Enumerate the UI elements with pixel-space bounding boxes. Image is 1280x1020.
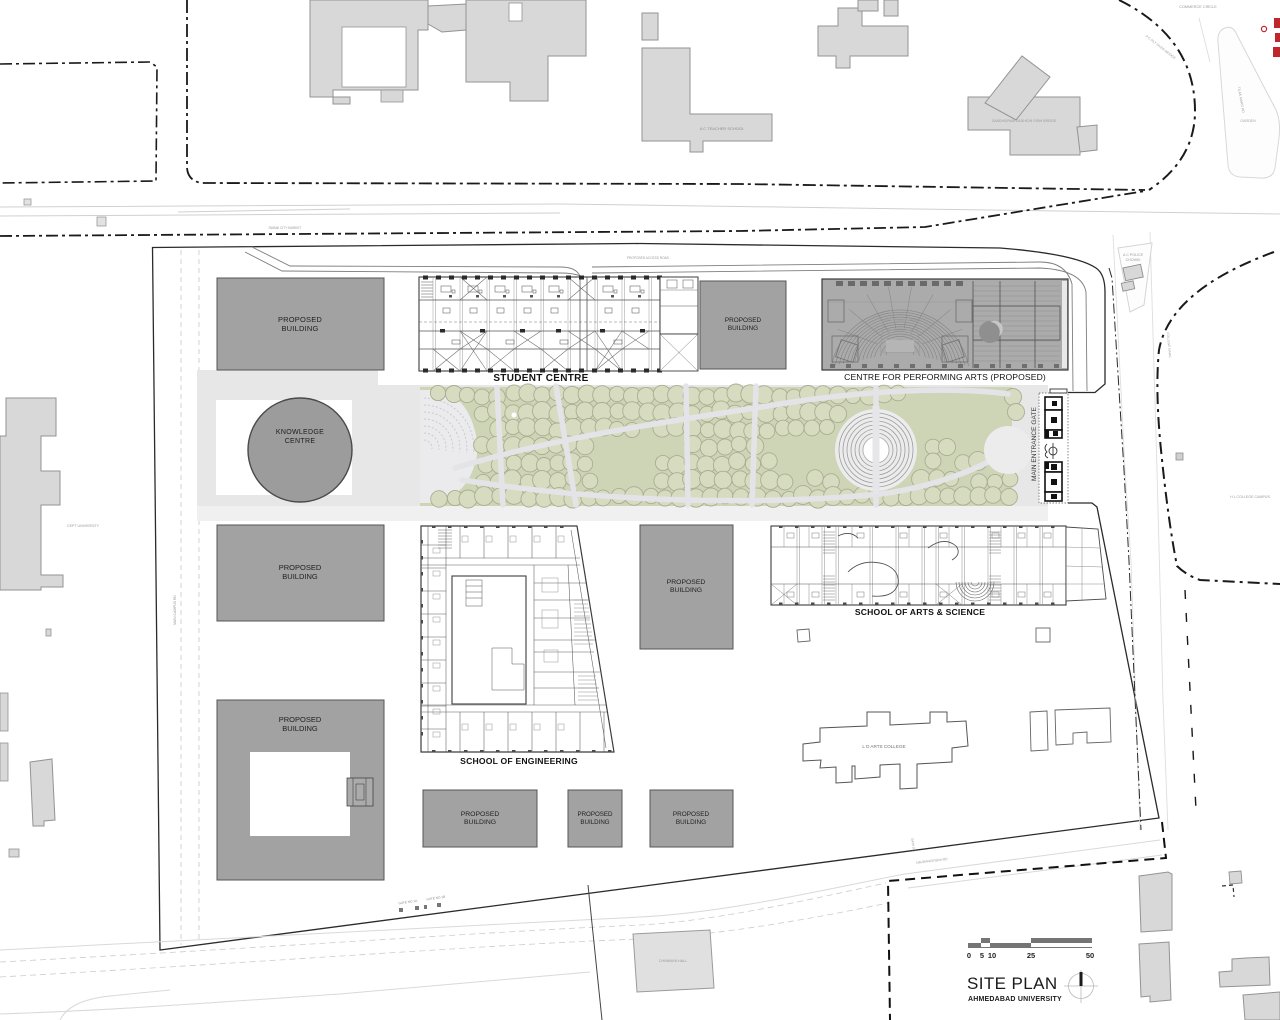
svg-text:25: 25 — [1027, 951, 1035, 960]
svg-text:H L COLLEGE CAMPUS: H L COLLEGE CAMPUS — [1230, 495, 1270, 499]
svg-text:BUILDING: BUILDING — [728, 325, 758, 332]
svg-text:GANDHIGRAM DADHICHI RISHI BRID: GANDHIGRAM DADHICHI RISHI BRIDGE — [992, 119, 1057, 123]
svg-text:BUILDING: BUILDING — [282, 572, 318, 581]
svg-text:A C POLICE: A C POLICE — [1123, 253, 1144, 257]
svg-text:BUILDING: BUILDING — [676, 819, 706, 826]
svg-text:CEPT UNIVERSITY: CEPT UNIVERSITY — [67, 524, 100, 528]
svg-text:50: 50 — [1086, 951, 1094, 960]
svg-text:L D ARTS COLLEGE: L D ARTS COLLEGE — [862, 744, 905, 749]
svg-text:GARDEN: GARDEN — [1240, 119, 1256, 123]
svg-text:CHOWKI: CHOWKI — [1126, 258, 1141, 262]
svg-text:KNOWLEDGE: KNOWLEDGE — [276, 429, 324, 436]
svg-text:PROPOSED: PROPOSED — [725, 317, 762, 324]
svg-text:BUILDING: BUILDING — [281, 324, 318, 333]
svg-text:PROPOSED: PROPOSED — [673, 811, 710, 818]
svg-text:AHMEDABAD UNIVERSITY: AHMEDABAD UNIVERSITY — [968, 996, 1062, 1003]
svg-text:SWAMI CITY MARKET: SWAMI CITY MARKET — [269, 226, 302, 230]
svg-text:BUILDING: BUILDING — [580, 819, 609, 826]
svg-text:5: 5 — [980, 951, 984, 960]
svg-text:CENTRE FOR PERFORMING ARTS (PR: CENTRE FOR PERFORMING ARTS (PROPOSED) — [844, 372, 1046, 382]
svg-text:A C TEACHER SCHOOL: A C TEACHER SCHOOL — [700, 126, 745, 131]
svg-text:SCHOOL OF ARTS & SCIENCE: SCHOOL OF ARTS & SCIENCE — [855, 607, 985, 617]
svg-text:BUILDING: BUILDING — [670, 587, 702, 594]
svg-text:CENTRE: CENTRE — [285, 438, 316, 445]
svg-text:SITE PLAN: SITE PLAN — [967, 974, 1058, 993]
svg-text:MAIN CAMPUS RD: MAIN CAMPUS RD — [173, 595, 177, 625]
svg-text:PROPOSED: PROPOSED — [279, 563, 322, 572]
svg-text:STUDENT CENTRE: STUDENT CENTRE — [493, 373, 588, 384]
svg-text:10: 10 — [988, 951, 996, 960]
svg-text:PROPOSED: PROPOSED — [278, 315, 322, 324]
svg-text:CHINMAYA HALL: CHINMAYA HALL — [659, 959, 687, 963]
svg-text:MAIN ENTRANCE GATE: MAIN ENTRANCE GATE — [1031, 407, 1038, 481]
svg-text:PROPOSED: PROPOSED — [279, 715, 322, 724]
svg-text:BUILDING: BUILDING — [464, 819, 496, 826]
svg-text:PROPOSED: PROPOSED — [667, 579, 706, 586]
svg-text:SCHOOL OF ENGINEERING: SCHOOL OF ENGINEERING — [460, 756, 578, 766]
svg-text:0: 0 — [967, 951, 971, 960]
svg-text:COMMERCE CIRCLE: COMMERCE CIRCLE — [1179, 5, 1217, 9]
svg-text:PROPOSED: PROPOSED — [577, 811, 613, 818]
svg-text:PROPOSED: PROPOSED — [461, 811, 500, 818]
svg-text:BUILDING: BUILDING — [282, 724, 318, 733]
svg-text:PROPOSED ACCESS ROAD: PROPOSED ACCESS ROAD — [627, 256, 670, 260]
